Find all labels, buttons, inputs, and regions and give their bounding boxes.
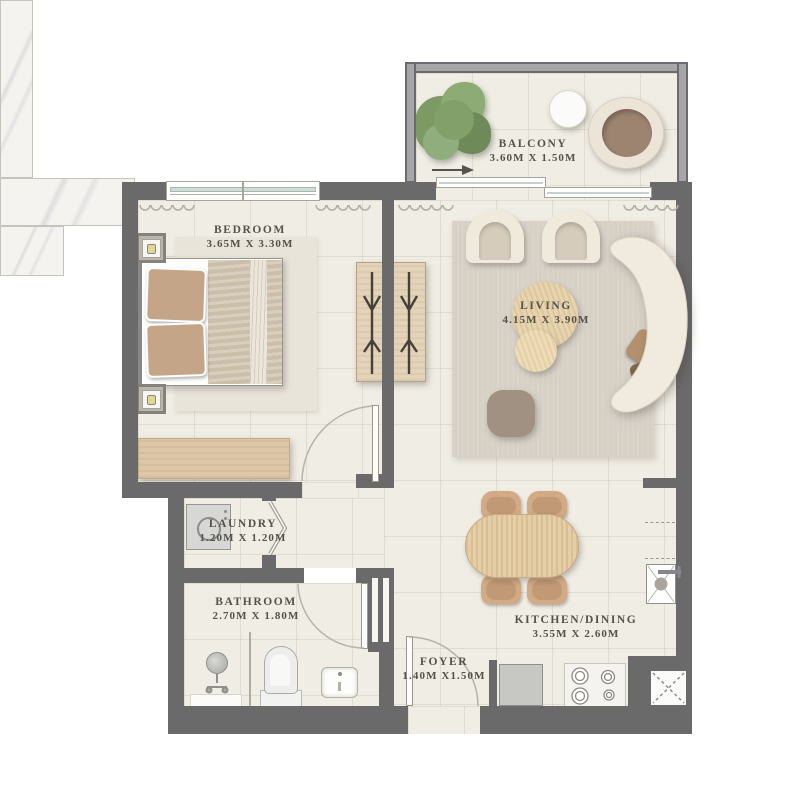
wall (168, 568, 304, 583)
bedroom-name: BEDROOM (206, 224, 293, 236)
foyer-dims: 1.40M X1.50M (402, 670, 485, 682)
side-table-icon (549, 90, 587, 128)
toilet-icon (264, 646, 298, 694)
floor-plan: BALCONY 3.60M X 1.50M BEDROOM 3.65M X 3.… (0, 0, 800, 800)
ottoman-icon (487, 390, 535, 437)
armchair-icon (466, 210, 524, 263)
foyer-label: FOYER 1.40M X1.50M (402, 656, 485, 682)
kitchen-sink-icon (646, 564, 676, 604)
laundry-name: LAUNDRY (199, 518, 286, 530)
counter-edge (643, 478, 676, 488)
wall (168, 706, 408, 734)
vanity-counter (0, 226, 64, 276)
dining-chair-icon (527, 574, 567, 604)
laundry-label: LAUNDRY 1.20M X 1.20M (199, 518, 286, 544)
sliding-door-panel (436, 177, 546, 188)
armchair-icon (542, 210, 600, 263)
round-chair-icon (588, 97, 664, 169)
pillow (145, 267, 207, 323)
kitchen-counter (0, 0, 33, 178)
bathroom-label: BATHROOM 2.70M X 1.80M (212, 596, 299, 622)
wall (676, 182, 692, 734)
dresser-icon (138, 438, 290, 479)
nightstand-icon (136, 384, 166, 414)
counter-edge (489, 660, 497, 708)
wall (382, 200, 394, 488)
nightstand-icon (136, 233, 166, 263)
pillow (145, 322, 207, 378)
kitchen-dining-name: KITCHEN/DINING (515, 614, 638, 626)
wall (379, 650, 394, 708)
upper-cabinet-line (645, 522, 675, 523)
bedroom-window (166, 181, 320, 201)
living-dims: 4.15M X 3.90M (502, 314, 589, 326)
foyer-name: FOYER (402, 656, 485, 668)
wall-niche (368, 568, 394, 652)
balcony-railing (405, 62, 688, 73)
wall (168, 482, 184, 734)
vanity-sink-icon (321, 667, 358, 698)
entry-threshold-floor (408, 706, 480, 734)
shower-glass-divider (249, 632, 251, 706)
tree-icon (415, 82, 495, 162)
bathroom-name: BATHROOM (212, 596, 299, 608)
bathroom-door-leaf (361, 583, 368, 649)
stove-icon (564, 663, 626, 708)
shaft-icon (651, 671, 686, 705)
bed-icon (131, 258, 283, 386)
living-label: LIVING 4.15M X 3.90M (502, 300, 589, 326)
kitchen-dining-dims: 3.55M X 2.60M (515, 628, 638, 640)
balcony-railing (405, 62, 416, 183)
bathroom-dims: 2.70M X 1.80M (212, 610, 299, 622)
appliance-icon (499, 664, 543, 706)
upper-cabinet-line (645, 558, 675, 559)
bedroom-dims: 3.65M X 3.30M (206, 238, 293, 250)
laundry-dims: 1.20M X 1.20M (199, 532, 286, 544)
kitchen-dining-label: KITCHEN/DINING 3.55M X 2.60M (515, 614, 638, 640)
wall (262, 490, 276, 501)
dining-table-icon (465, 514, 579, 578)
bedroom-label: BEDROOM 3.65M X 3.30M (206, 224, 293, 250)
shower-head-icon (206, 652, 228, 674)
wall (318, 182, 436, 200)
balcony-name: BALCONY (489, 138, 576, 150)
dining-chair-icon (481, 574, 521, 604)
kitchen-counter (0, 178, 135, 226)
coffee-table-icon (515, 330, 557, 372)
wall (122, 182, 138, 498)
living-name: LIVING (502, 300, 589, 312)
balcony-railing (677, 62, 688, 183)
sliding-door-panel (544, 187, 652, 198)
balcony-label: BALCONY 3.60M X 1.50M (489, 138, 576, 164)
balcony-dims: 3.60M X 1.50M (489, 152, 576, 164)
bedroom-door-leaf (372, 405, 379, 482)
blanket (208, 260, 282, 384)
throw (250, 260, 267, 384)
wall (262, 555, 276, 569)
